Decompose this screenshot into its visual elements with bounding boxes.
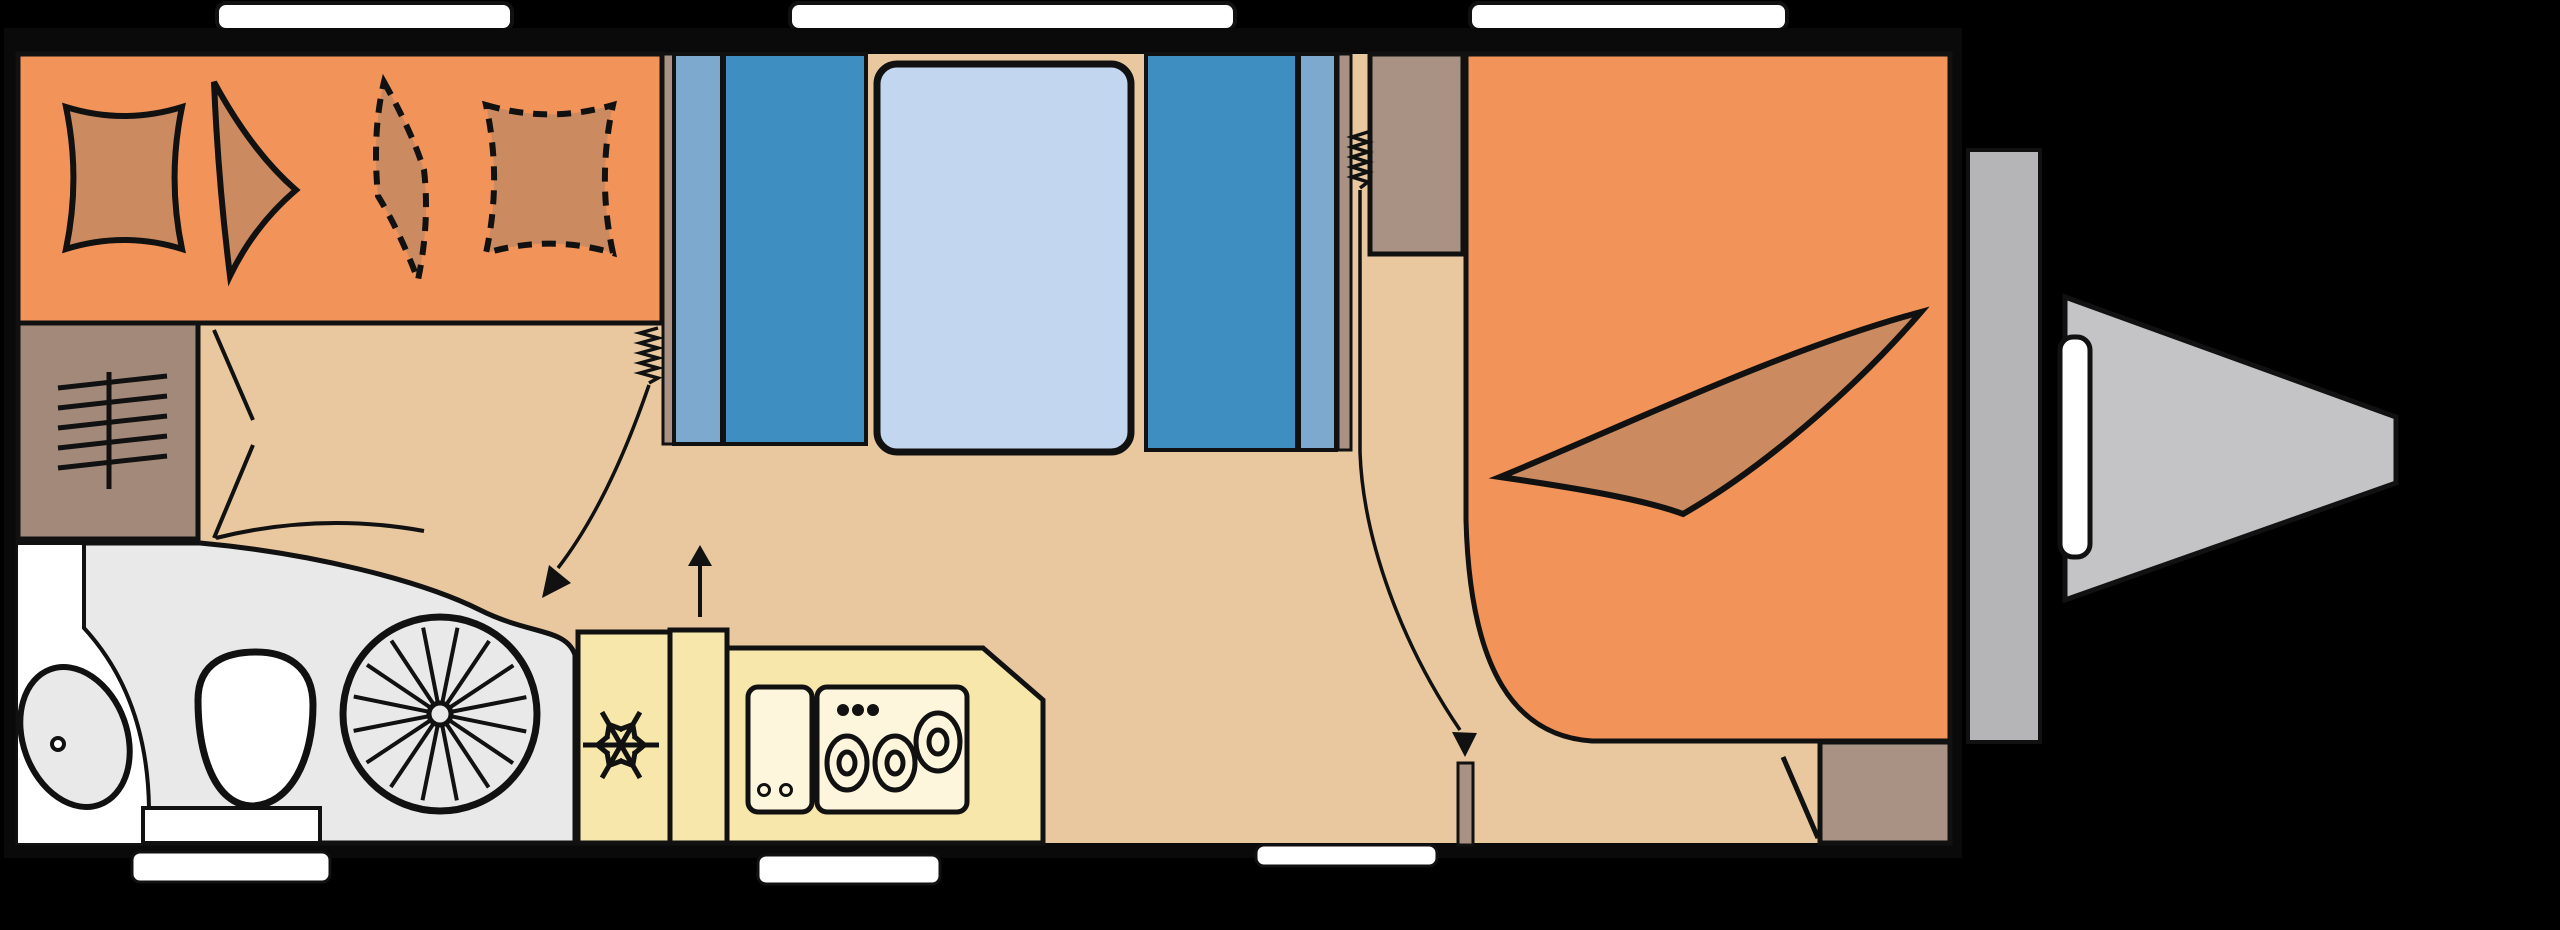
wheel-hub: [429, 703, 451, 725]
bunk-partition-right: [1338, 54, 1351, 450]
kitchen-cabinet: [670, 630, 727, 843]
hob-knob-dots: [837, 704, 879, 716]
dinette-seat-cushion: [66, 107, 182, 249]
snowflake-branch: [607, 725, 609, 739]
bunk-mattress: [877, 64, 1131, 452]
drawbar-coupling-handle: [2060, 337, 2090, 557]
roof-vent: [217, 3, 512, 30]
toilet-base: [143, 808, 320, 843]
dinette-optional-cushion: [486, 105, 613, 253]
entry-door-post: [1458, 763, 1473, 845]
snowflake-branch: [633, 751, 635, 765]
caravan-floor-plan: [0, 0, 2560, 930]
roof-vent: [1470, 3, 1787, 30]
bunk-side-panel-left-dark: [724, 54, 866, 444]
entry-step: [1256, 845, 1437, 866]
washbasin-drain: [52, 738, 64, 750]
wardrobe: [1370, 54, 1463, 254]
entry-step: [758, 855, 940, 884]
entry-step: [132, 852, 330, 882]
toilet: [198, 652, 313, 806]
bunk-side-panel-right-dark: [1146, 54, 1297, 450]
roof-vents-group: [217, 3, 1787, 30]
bunk-side-panel-left-light: [674, 54, 722, 444]
bumper-bar: [1968, 150, 2040, 742]
roof-vent: [790, 3, 1235, 30]
rear-corner-cabinet: [1820, 742, 1950, 843]
bunk-side-panel-right-light: [1299, 54, 1336, 450]
